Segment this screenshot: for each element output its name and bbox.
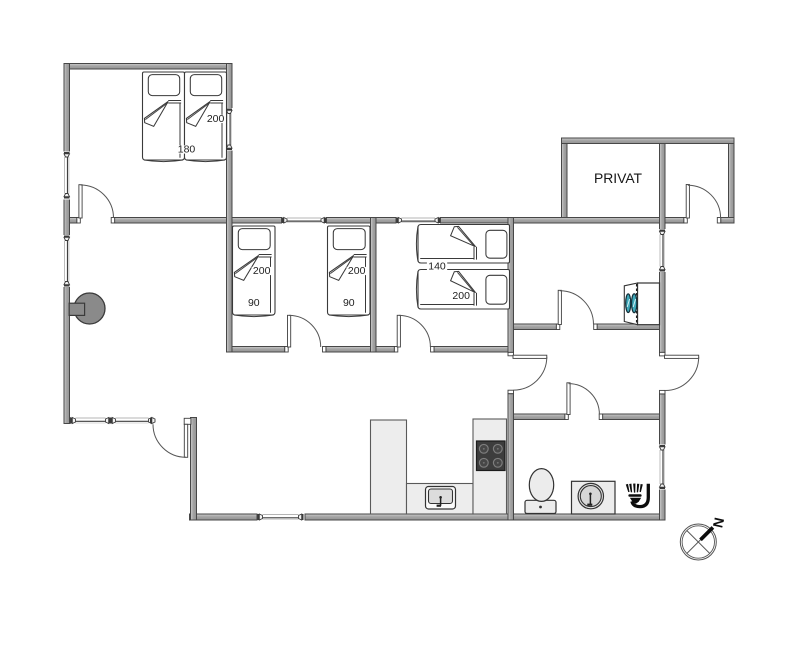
svg-text:200: 200 <box>348 265 366 277</box>
svg-text:90: 90 <box>248 297 260 309</box>
svg-text:200: 200 <box>207 113 225 125</box>
svg-text:200: 200 <box>452 290 470 302</box>
svg-text:140: 140 <box>428 261 446 273</box>
svg-text:200: 200 <box>253 265 271 277</box>
svg-text:PRIVAT: PRIVAT <box>594 170 643 186</box>
svg-text:180: 180 <box>178 144 196 156</box>
svg-text:90: 90 <box>343 297 355 309</box>
